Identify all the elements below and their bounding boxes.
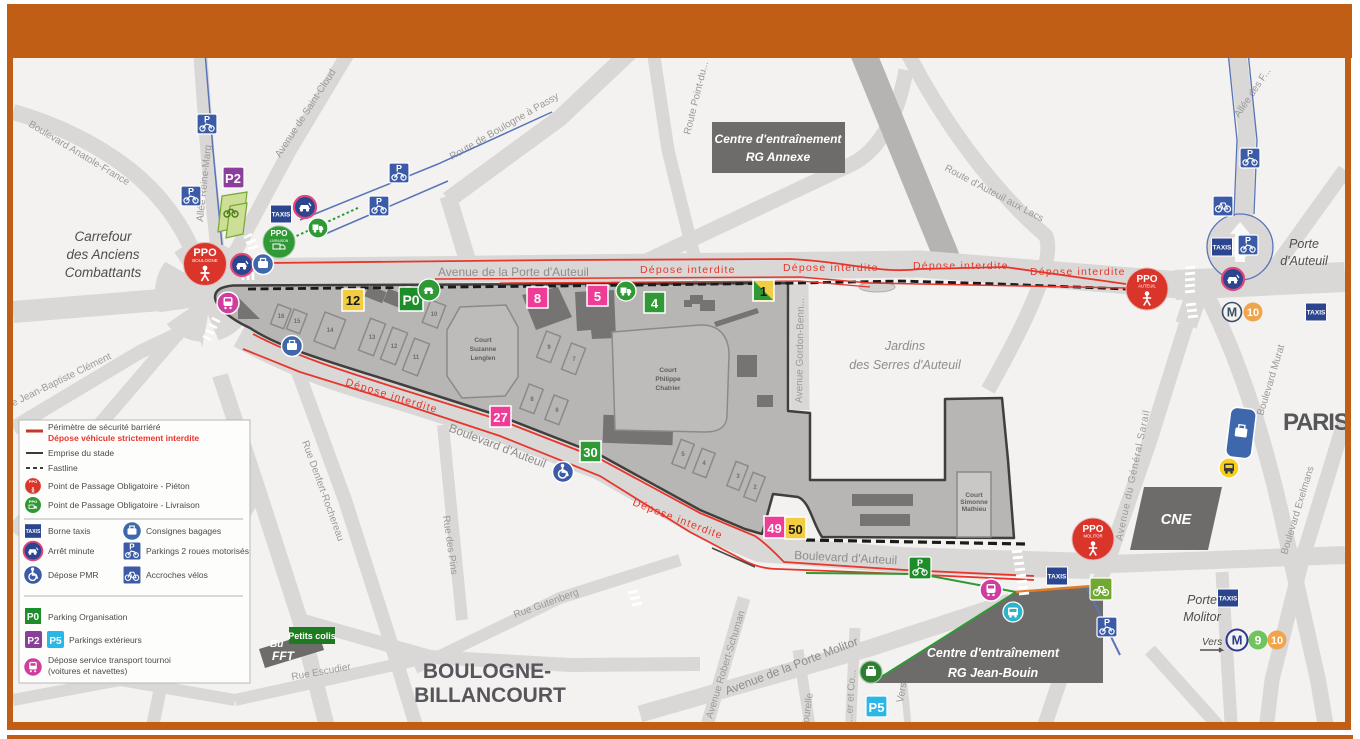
svg-text:14: 14: [327, 328, 334, 334]
svg-text:Court: Court: [474, 337, 492, 344]
svg-text:Petits colis: Petits colis: [288, 631, 336, 641]
svg-text:1: 1: [760, 284, 767, 299]
svg-text:Porte: Porte: [1187, 593, 1217, 607]
svg-text:Mathieu: Mathieu: [962, 506, 987, 513]
svg-text:4: 4: [651, 296, 659, 311]
svg-text:RG Jean-Bouin: RG Jean-Bouin: [948, 666, 1039, 680]
svg-text:M: M: [1232, 633, 1243, 648]
svg-text:15: 15: [294, 319, 301, 325]
svg-text:Consignes bagages: Consignes bagages: [146, 526, 221, 536]
svg-text:8: 8: [534, 291, 541, 306]
svg-text:Molitor: Molitor: [1183, 610, 1221, 624]
svg-text:50: 50: [788, 522, 802, 537]
svg-text:P2: P2: [225, 171, 241, 186]
svg-text:Dépose interdite: Dépose interdite: [783, 262, 879, 274]
svg-text:des Anciens: des Anciens: [66, 247, 139, 262]
svg-text:Porte: Porte: [1289, 237, 1319, 251]
svg-text:Lenglen: Lenglen: [471, 355, 496, 362]
svg-text:P2: P2: [27, 636, 40, 647]
svg-text:FFT: FFT: [272, 649, 296, 663]
svg-text:Centre d'entraînement: Centre d'entraînement: [927, 646, 1060, 660]
svg-text:Court: Court: [965, 492, 983, 499]
svg-text:CNE: CNE: [1161, 512, 1193, 528]
svg-text:Parking Organisation: Parking Organisation: [48, 612, 128, 622]
svg-text:49: 49: [767, 521, 781, 536]
svg-text:Carrefour: Carrefour: [74, 229, 132, 244]
svg-text:M: M: [1227, 306, 1237, 320]
svg-text:Simonne: Simonne: [960, 499, 988, 506]
svg-text:Dépose PMR: Dépose PMR: [48, 570, 99, 580]
svg-text:Court: Court: [659, 367, 677, 374]
svg-text:des Serres d'Auteuil: des Serres d'Auteuil: [849, 358, 962, 372]
svg-text:Jardins: Jardins: [884, 339, 925, 353]
svg-text:12: 12: [346, 293, 360, 308]
svg-text:10: 10: [431, 312, 438, 318]
svg-text:P0: P0: [402, 292, 419, 308]
svg-text:PPO: PPO: [29, 499, 37, 504]
svg-text:13: 13: [369, 335, 376, 341]
svg-text:Parkings extérieurs: Parkings extérieurs: [69, 635, 142, 645]
svg-text:9: 9: [1255, 634, 1262, 648]
svg-text:Accroches vélos: Accroches vélos: [146, 570, 208, 580]
svg-text:PPO: PPO: [271, 229, 288, 238]
svg-text:11: 11: [413, 355, 420, 361]
svg-text:Périmètre de sécurité barriéré: Périmètre de sécurité barriéré: [48, 422, 161, 432]
svg-text:d'Auteuil: d'Auteuil: [1280, 254, 1329, 268]
svg-text:LIVRAISON: LIVRAISON: [270, 239, 289, 243]
svg-text:MOLITOR: MOLITOR: [1083, 534, 1102, 539]
svg-text:Point de Passage Obligatoire -: Point de Passage Obligatoire - Livraison: [48, 500, 200, 510]
svg-text:Avenue de la Porte d'Auteuil: Avenue de la Porte d'Auteuil: [438, 265, 589, 279]
svg-text:Arrêt minute: Arrêt minute: [48, 546, 95, 556]
svg-text:Suzanne: Suzanne: [470, 346, 497, 353]
svg-text:BOULOGNE: BOULOGNE: [192, 258, 218, 263]
svg-text:P5: P5: [49, 636, 62, 647]
svg-text:Dépose véhicule strictement in: Dépose véhicule strictement interdite: [48, 433, 199, 443]
svg-text:(voitures et navettes): (voitures et navettes): [48, 666, 128, 676]
svg-text:Borne taxis: Borne taxis: [48, 526, 91, 536]
svg-text:Centre d'entraînement: Centre d'entraînement: [715, 132, 843, 146]
svg-text:RG Annexe: RG Annexe: [746, 150, 811, 164]
svg-text:Parkings 2 roues motorisés: Parkings 2 roues motorisés: [146, 546, 249, 556]
svg-text:Fastline: Fastline: [48, 463, 78, 473]
svg-text:10: 10: [1247, 307, 1259, 319]
svg-text:Emprise du stade: Emprise du stade: [48, 448, 114, 458]
svg-text:Vers: Vers: [1202, 637, 1222, 648]
svg-text:Point de Passage Obligatoire -: Point de Passage Obligatoire - Piéton: [48, 481, 190, 491]
svg-text:P0: P0: [27, 612, 40, 623]
svg-text:30: 30: [583, 445, 597, 460]
svg-text:AUTEUIL: AUTEUIL: [1138, 284, 1156, 289]
svg-text:Philippe: Philippe: [655, 376, 681, 383]
svg-text:27: 27: [493, 410, 507, 425]
svg-text:BOULOGNE-: BOULOGNE-: [423, 660, 551, 683]
svg-text:Avenue Gordon-Benn...: Avenue Gordon-Benn...: [794, 298, 807, 403]
svg-text:Dépose service transport tourn: Dépose service transport tournoi: [48, 655, 171, 665]
svg-text:Combattants: Combattants: [65, 265, 142, 280]
svg-text:BILLANCOURT: BILLANCOURT: [414, 684, 566, 707]
svg-text:12: 12: [391, 344, 398, 350]
svg-text:Dépose interdite: Dépose interdite: [640, 264, 736, 276]
svg-text:Dépose interdite: Dépose interdite: [913, 260, 1009, 272]
svg-text:P5: P5: [869, 700, 885, 715]
svg-text:Dépose interdite: Dépose interdite: [1030, 266, 1126, 278]
svg-text:5: 5: [594, 289, 601, 304]
svg-text:Chatrier: Chatrier: [656, 385, 681, 392]
svg-text:10: 10: [1271, 635, 1283, 647]
svg-text:16: 16: [278, 314, 285, 320]
svg-text:PARIS: PARIS: [1283, 409, 1350, 436]
